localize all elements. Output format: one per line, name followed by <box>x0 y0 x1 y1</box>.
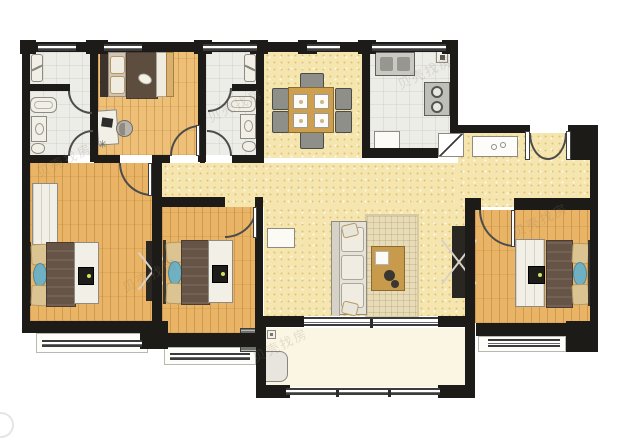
dining-chair-bottom <box>300 132 324 149</box>
bed-accent <box>573 262 587 286</box>
window-top-1 <box>38 44 76 51</box>
watermark-logo-circle <box>0 412 14 438</box>
mid-wall-seg <box>22 155 68 163</box>
bed-headboard <box>100 52 108 97</box>
entry-top-wall <box>450 125 530 133</box>
vanity-sink-2 <box>240 114 256 139</box>
closet <box>32 183 58 245</box>
cooktop <box>424 82 450 116</box>
window-top-4 <box>307 44 340 51</box>
bath2-divider <box>232 84 256 91</box>
window-kitchen <box>372 44 446 51</box>
balcony-corner <box>256 385 290 398</box>
burner-1 <box>431 86 443 98</box>
dining-chair-left-2 <box>272 111 289 133</box>
master-top-wall-seg <box>514 198 598 210</box>
bedroom-middle-bottom-wall <box>152 333 266 347</box>
shoe-cabinet <box>472 136 518 157</box>
entry-door-leaf-left <box>525 131 530 160</box>
kitchen-corner-door <box>438 133 464 157</box>
kitchen-left-wall <box>362 48 370 156</box>
dining-chair-right-1 <box>335 88 352 110</box>
mid-wall-seg <box>200 155 205 163</box>
bedroom-small-door-leaf <box>196 125 200 156</box>
window-bay-left <box>42 340 142 347</box>
bedrooms-divider-wall <box>152 163 162 333</box>
pillow <box>571 284 589 306</box>
outer-wall-right <box>590 155 598 330</box>
master-door-leaf <box>511 210 515 247</box>
tv <box>78 267 94 285</box>
sofa <box>331 221 367 315</box>
living-master-wall <box>465 205 475 398</box>
balcony-floor <box>266 328 465 387</box>
bed-left-blanket <box>46 242 76 307</box>
bedroom-middle-top-wall <box>152 197 225 207</box>
outer-wall-left <box>22 42 30 333</box>
burner-2 <box>431 101 443 113</box>
shoe-icon <box>491 144 497 150</box>
shower-fixture <box>31 54 43 82</box>
balcony-railing <box>286 388 440 395</box>
bedroom-left-door-leaf <box>148 163 152 196</box>
tv-cabinet <box>452 226 465 298</box>
mid-wall-seg <box>94 155 120 163</box>
plant-icon: ✳ <box>98 138 107 151</box>
balcony-corner <box>438 385 475 398</box>
bathtub <box>30 97 57 113</box>
desk-chair <box>116 120 133 137</box>
toilet <box>31 143 45 154</box>
side-cabinet <box>267 228 295 248</box>
toilet-2 <box>242 141 256 152</box>
laptop-icon <box>101 117 113 127</box>
mid-wall-seg <box>232 155 264 163</box>
bed-mid-blanket <box>181 240 210 305</box>
bedroom-left-bottom-wall <box>22 321 152 333</box>
balcony-sliding-door <box>304 317 438 326</box>
master-bed-blanket <box>546 240 573 308</box>
washing-machine <box>265 351 288 382</box>
shoe-icon <box>500 142 506 148</box>
bed-accent <box>33 263 47 287</box>
window-master-bay <box>488 339 560 347</box>
coffee-table <box>371 246 405 291</box>
kitchen-right-wall <box>450 48 458 133</box>
window-top-3 <box>203 44 257 51</box>
living-bottom-wall-seg <box>438 316 466 327</box>
window-top-2 <box>104 44 142 51</box>
vanity-sink <box>31 116 47 142</box>
bed-small <box>100 52 174 97</box>
window-bay-middle <box>170 353 250 360</box>
floor-plan: ✳ <box>0 0 619 444</box>
tv <box>528 266 545 284</box>
tv <box>212 265 228 283</box>
dining-chair-right-2 <box>335 111 352 133</box>
entry-door-leaf-right <box>566 131 571 160</box>
master-corner-chunk <box>566 321 598 352</box>
bedroom-middle-door-leaf <box>253 207 257 238</box>
mid-wall-seg <box>152 155 170 163</box>
floor-drain <box>267 330 276 339</box>
master-bottom-wall <box>476 323 568 336</box>
bath2-right-wall <box>256 48 264 162</box>
kitchen-sink <box>375 52 415 76</box>
bath1-divider <box>30 84 70 91</box>
dining-chair-left-1 <box>272 88 289 110</box>
bathtub-2 <box>227 96 256 112</box>
bed-accent <box>168 261 182 285</box>
shower-fixture-2 <box>244 54 256 82</box>
kitchen-bottom-wall <box>362 148 438 158</box>
dining-table <box>288 87 334 133</box>
